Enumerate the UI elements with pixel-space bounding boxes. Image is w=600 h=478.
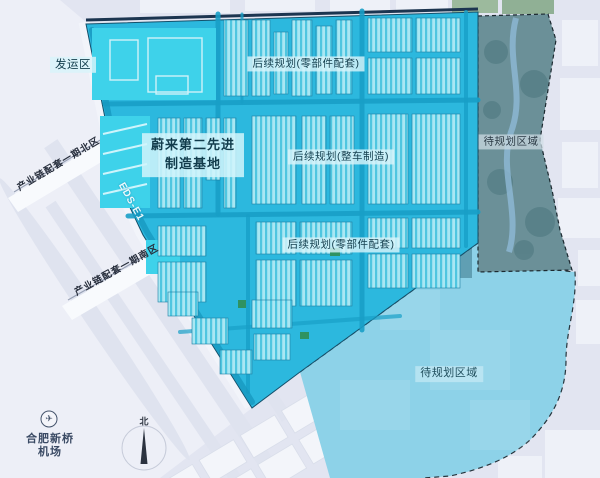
label-airport-line2: 机场: [38, 443, 62, 459]
label-future-vehicle: 后续规划(整车制造): [288, 149, 394, 164]
label-pending-south: 待规划区域: [415, 366, 483, 382]
label-shipping-area: 发运区: [50, 57, 96, 73]
planning-map: 发运区 后续规划(零部件配套) 蔚来第二先进 制造基地 后续规划(整车制造) 后…: [0, 0, 600, 478]
label-future-parts-mid: 后续规划(零部件配套): [283, 237, 400, 252]
label-pending-east: 待规划区域: [479, 134, 544, 149]
label-nio-base-line1: 蔚来第二先进: [151, 136, 235, 155]
label-compass-north: 北: [139, 415, 148, 428]
airplane-icon: ✈: [41, 411, 58, 428]
label-nio-base: 蔚来第二先进 制造基地: [142, 133, 244, 177]
label-nio-base-line2: 制造基地: [151, 155, 235, 174]
airplane-glyph: ✈: [45, 414, 53, 425]
label-future-parts-north: 后续规划(零部件配套): [248, 56, 365, 71]
